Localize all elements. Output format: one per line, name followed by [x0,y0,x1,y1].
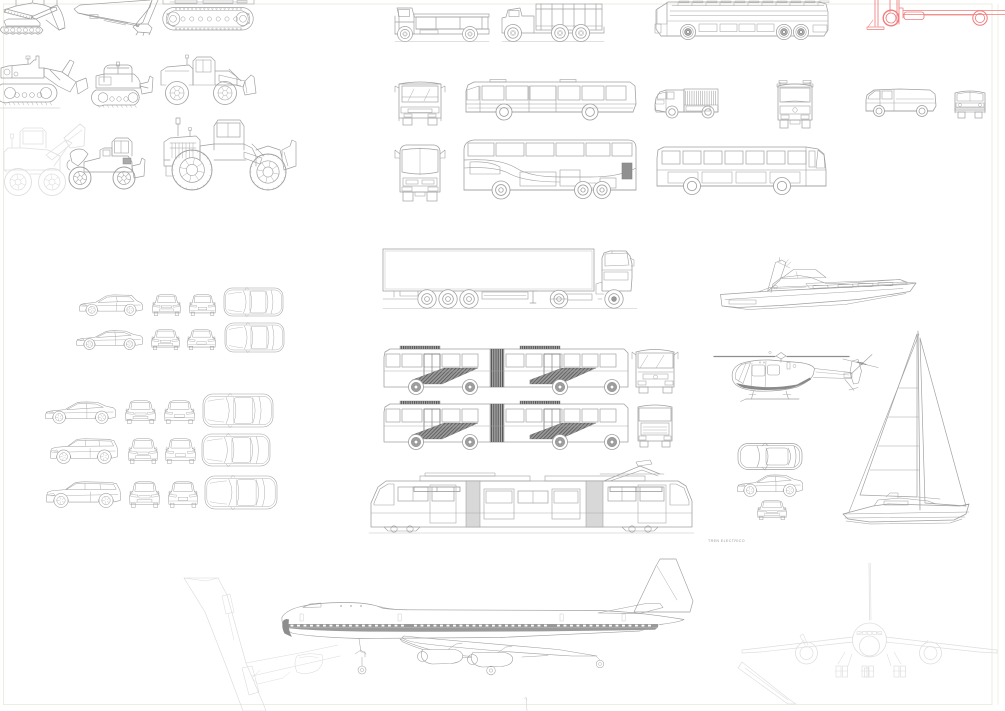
svg-text:TREN ELECTRICO: TREN ELECTRICO [708,539,745,543]
